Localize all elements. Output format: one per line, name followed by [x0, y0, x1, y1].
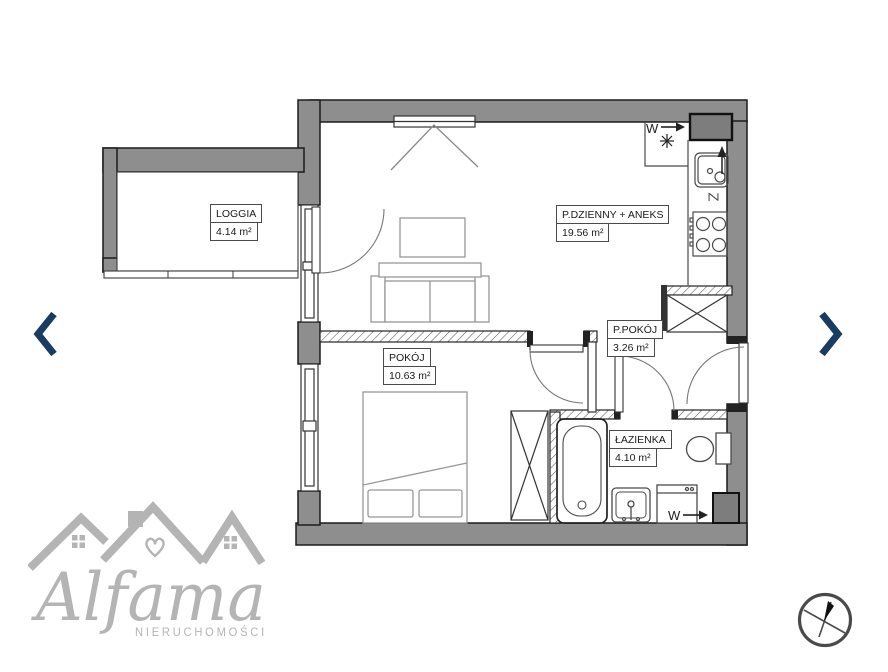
bathroom-door-swing [619, 356, 674, 411]
loggia-outline [104, 172, 298, 278]
chevron-left-icon [28, 306, 64, 362]
bedroom-door-leaf [530, 345, 583, 352]
washer-label: W [668, 508, 681, 523]
logo-subtitle-text: NIERUCHOMOŚCI [135, 624, 267, 639]
floorplan-viewer: W Z W LOGGIA 4.14 m² P.DZIENNY + ANEKS 1… [0, 0, 888, 672]
loggia-railing [104, 271, 298, 278]
heart-icon [146, 539, 163, 556]
vent-label: W [646, 121, 659, 136]
prev-image-button[interactable] [28, 306, 64, 362]
room-name: LOGGIA [210, 204, 262, 223]
loggia-wall-top [103, 148, 304, 172]
chevron-right-icon [812, 306, 848, 362]
coffee-table [400, 218, 465, 257]
room-label-bathroom: ŁAZIENKA 4.10 m² [609, 430, 672, 467]
entrance-door-swing [687, 347, 744, 404]
pillow [368, 490, 413, 517]
wall-left-lower [298, 491, 320, 525]
wall-bath-top-right [672, 410, 727, 419]
living-furniture [371, 218, 489, 322]
agency-logo-graphic: Alfama NIERUCHOMOŚCI [28, 498, 280, 650]
room-area: 3.26 m² [607, 338, 655, 357]
room-name: POKÓJ [383, 348, 431, 367]
bathroom-door-leaf [615, 356, 623, 412]
loggia-wall-left [103, 148, 117, 272]
wall-kitchen-hall [665, 286, 732, 295]
kitchen [645, 122, 728, 285]
room-area: 10.63 m² [383, 366, 436, 385]
hall-wardrobe [667, 295, 727, 332]
shaft-top-right [690, 114, 732, 140]
room-label-bedroom: POKÓJ 10.63 m² [383, 348, 436, 385]
compass-north-icon [793, 588, 857, 652]
washbasin [612, 488, 650, 522]
arrow-right-icon [676, 123, 685, 132]
next-image-button[interactable] [812, 306, 848, 362]
sofa [371, 263, 489, 322]
wall-living-bedroom [320, 331, 530, 342]
room-name: P.DZIENNY + ANEKS [556, 205, 669, 224]
balcony-door-swing [320, 209, 384, 273]
arrow-right-icon [699, 511, 708, 520]
bathtub [557, 419, 607, 523]
entrance-door-leaf [739, 343, 748, 403]
vent-star-icon [660, 134, 674, 148]
house-window-icon [72, 535, 85, 548]
wall-left-middle [298, 322, 320, 364]
wall-hall-bedroom [588, 342, 596, 412]
compass [793, 588, 857, 652]
room-name: P.POKÓJ [607, 320, 663, 339]
house-window-icon [224, 536, 237, 549]
wall-top [310, 100, 747, 122]
shaft-bottom-right [713, 493, 739, 523]
arrow-up-icon [718, 146, 727, 157]
agency-logo: Alfama NIERUCHOMOŚCI [28, 498, 280, 650]
bedroom-door-swing [530, 350, 583, 403]
balcony-door-leaf [312, 207, 320, 273]
kitchen-appliance-label: Z [705, 192, 722, 201]
room-label-loggia: LOGGIA 4.14 m² [210, 204, 262, 241]
room-area: 4.14 m² [210, 222, 258, 241]
wall-bottom [296, 523, 747, 545]
room-label-living: P.DZIENNY + ANEKS 19.56 m² [556, 205, 669, 242]
room-name: ŁAZIENKA [609, 430, 672, 449]
wall-right-upper [727, 121, 747, 343]
room-area: 4.10 m² [609, 448, 657, 467]
room-area: 19.56 m² [556, 223, 609, 242]
window-tilt-symbol [391, 125, 478, 170]
kitchen-sink [695, 153, 728, 187]
bedroom-wardrobe [511, 411, 548, 520]
room-label-hall: P.POKÓJ 3.26 m² [607, 320, 663, 357]
bed [363, 392, 467, 523]
toilet [687, 433, 732, 464]
pillow [419, 490, 462, 517]
